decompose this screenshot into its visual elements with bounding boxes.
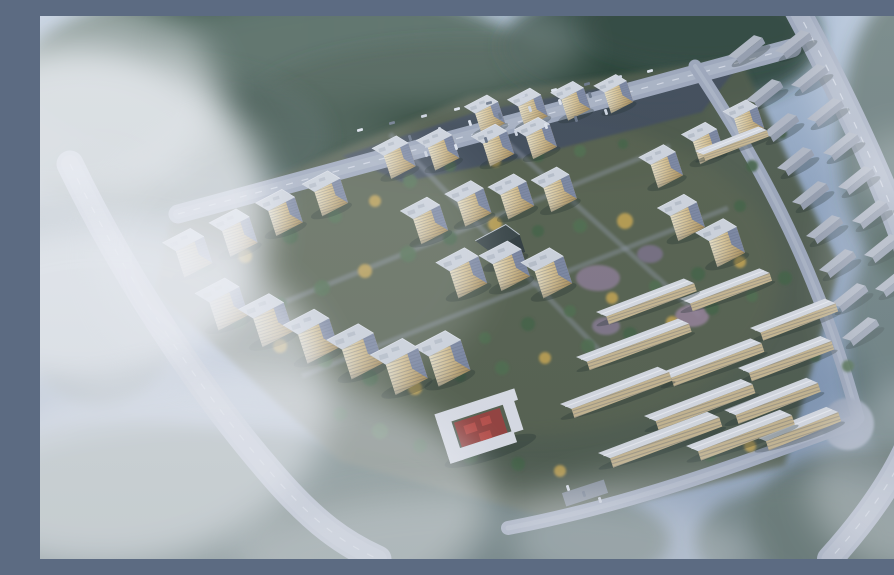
scene-svg: [40, 16, 894, 559]
atmosphere-tint: [40, 16, 894, 559]
aerial-rendering: [40, 16, 894, 559]
